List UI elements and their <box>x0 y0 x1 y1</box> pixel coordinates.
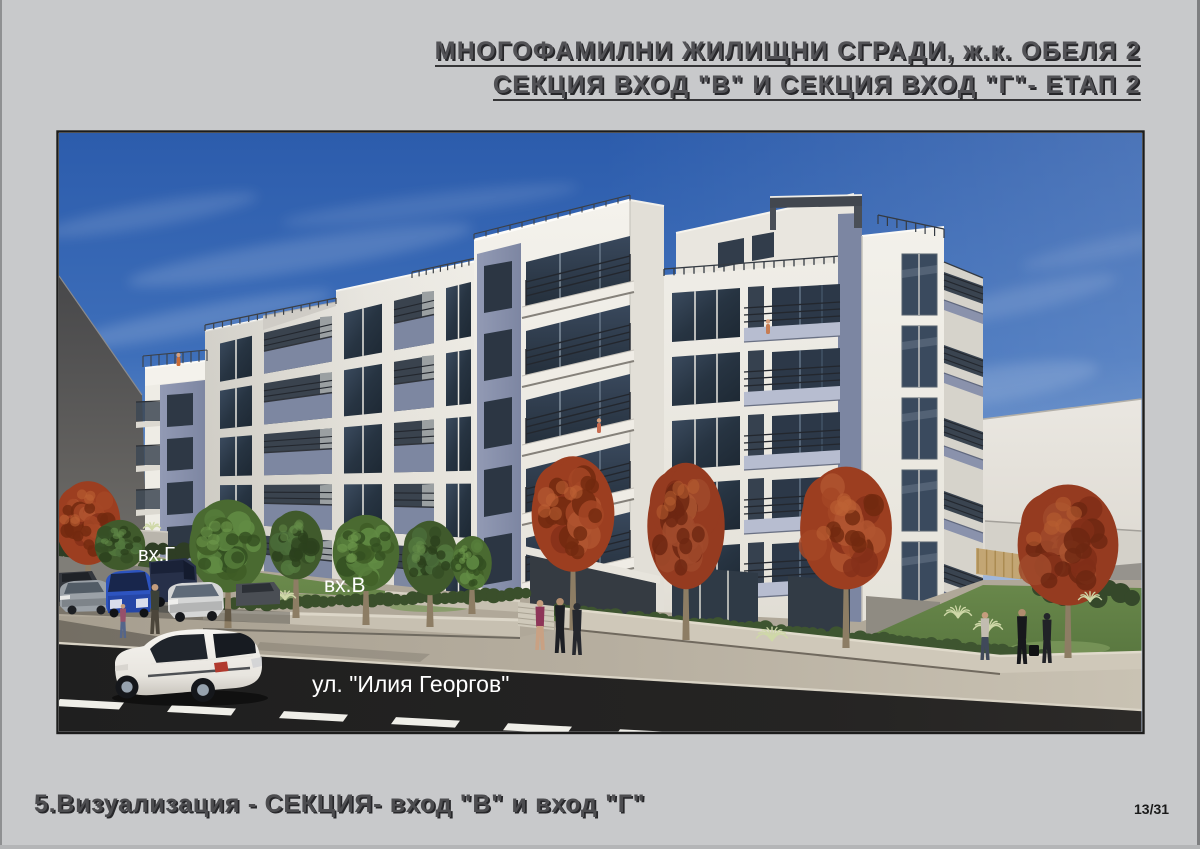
svg-text:вх.Г: вх.Г <box>138 544 175 566</box>
svg-text:вх.В: вх.В <box>324 574 366 597</box>
svg-text:ул. "Илия Георгов": ул. "Илия Георгов" <box>312 671 509 697</box>
